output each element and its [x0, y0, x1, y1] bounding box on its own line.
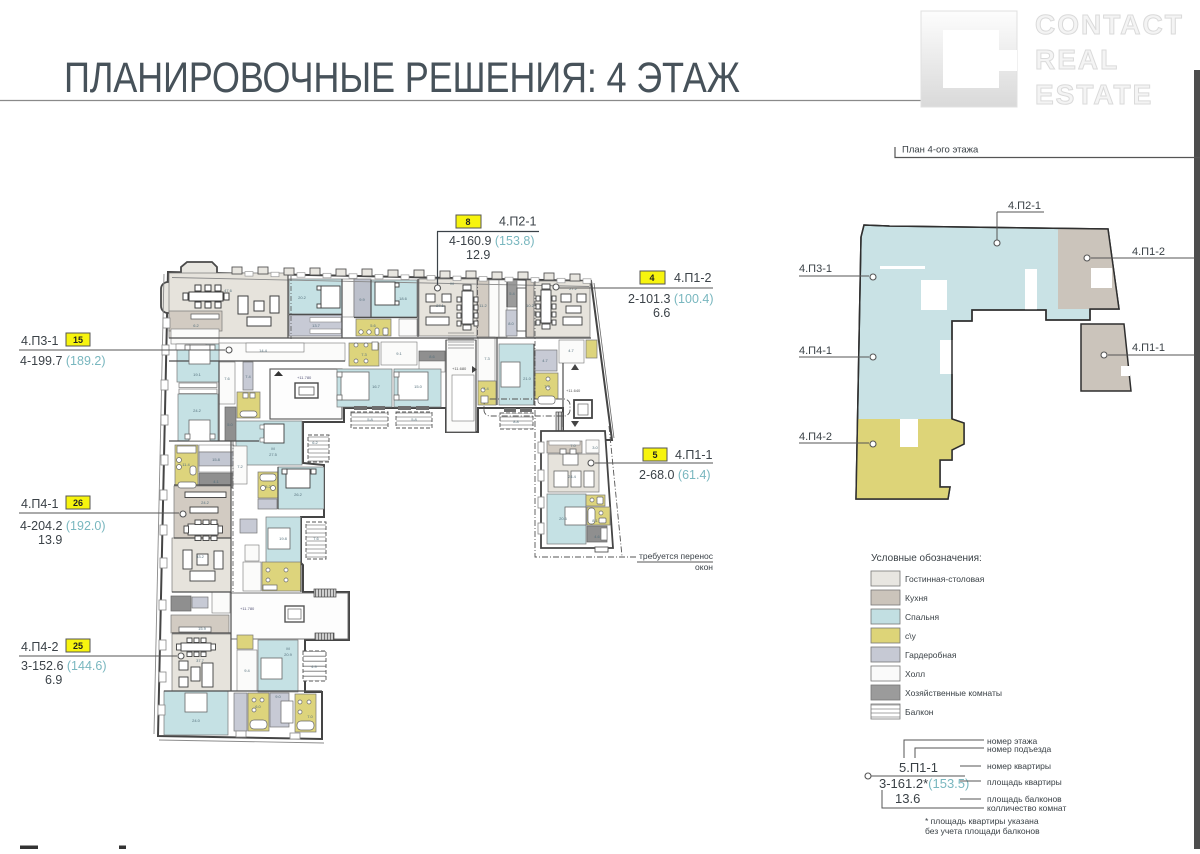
svg-text:15.8: 15.8 — [212, 457, 221, 462]
svg-text:+11.640: +11.640 — [566, 388, 581, 393]
svg-text:без учета площади балконов: без учета площади балконов — [925, 826, 1040, 836]
svg-text:М: М — [271, 446, 274, 451]
svg-text:7.3: 7.3 — [484, 356, 490, 361]
svg-text:+11.780: +11.780 — [240, 606, 255, 611]
svg-text:25: 25 — [73, 641, 83, 651]
svg-text:7.0: 7.0 — [570, 443, 576, 448]
svg-text:Балкон: Балкон — [905, 707, 934, 717]
svg-text:площадь квартиры: площадь квартиры — [987, 777, 1062, 787]
svg-text:3.0: 3.0 — [592, 445, 598, 450]
svg-text:ПЛАНИРОВОЧНЫЕ РЕШЕНИЯ: 4 ЭТАЖ: ПЛАНИРОВОЧНЫЕ РЕШЕНИЯ: 4 ЭТАЖ — [64, 54, 740, 101]
svg-text:колличество комнат: колличество комнат — [987, 803, 1066, 813]
svg-text:9.4: 9.4 — [244, 668, 250, 673]
svg-text:7.4: 7.4 — [245, 374, 251, 379]
svg-text:4.9: 4.9 — [311, 664, 317, 669]
svg-text:33.2: 33.2 — [196, 554, 205, 559]
svg-text:4.6: 4.6 — [594, 534, 600, 539]
svg-text:8.6: 8.6 — [429, 354, 435, 359]
svg-text:18.6: 18.6 — [399, 296, 408, 301]
svg-text:8.8: 8.8 — [513, 419, 519, 424]
svg-text:+11.780: +11.780 — [297, 375, 312, 380]
svg-text:15: 15 — [73, 335, 83, 345]
svg-text:13.6: 13.6 — [895, 791, 920, 806]
svg-text:26: 26 — [73, 498, 83, 508]
svg-text:4.П3-1: 4.П3-1 — [799, 263, 832, 275]
svg-text:11.4: 11.4 — [182, 462, 190, 467]
svg-text:М: М — [286, 646, 289, 651]
svg-text:4-160.9 (153.8): 4-160.9 (153.8) — [449, 234, 534, 248]
svg-text:16.7: 16.7 — [372, 384, 381, 389]
svg-text:4.П4-1: 4.П4-1 — [799, 345, 832, 357]
svg-text:8: 8 — [465, 217, 470, 227]
svg-text:8.0: 8.0 — [508, 321, 514, 326]
svg-text:Гостинная-столовая: Гостинная-столовая — [905, 574, 985, 584]
svg-text:План 4-ого этажа: План 4-ого этажа — [902, 145, 979, 156]
svg-text:6.2: 6.2 — [312, 440, 318, 445]
svg-text:4-199.7 (189.2): 4-199.7 (189.2) — [20, 354, 105, 368]
svg-text:13.7: 13.7 — [312, 323, 321, 328]
svg-text:4.П1-1: 4.П1-1 — [675, 448, 713, 462]
svg-text:4.П1-1: 4.П1-1 — [1132, 342, 1165, 354]
svg-text:20.6: 20.6 — [559, 516, 568, 521]
svg-text:9.9: 9.9 — [359, 297, 365, 302]
svg-text:окон: окон — [695, 562, 713, 572]
svg-text:+11.680: +11.680 — [452, 366, 467, 371]
svg-text:24.2: 24.2 — [201, 500, 210, 505]
svg-text:5.8: 5.8 — [367, 417, 373, 422]
svg-text:24.0: 24.0 — [192, 718, 201, 723]
svg-text:требуется перенос: требуется перенос — [639, 551, 714, 561]
svg-text:ESTATE: ESTATE — [1035, 79, 1153, 110]
svg-text:6.2: 6.2 — [193, 323, 199, 328]
svg-text:Хозяйственные комнаты: Хозяйственные комнаты — [905, 688, 1002, 698]
svg-text:7.7: 7.7 — [544, 384, 550, 389]
svg-text:REAL: REAL — [1035, 44, 1119, 75]
svg-text:Спальня: Спальня — [905, 612, 940, 622]
svg-text:4.П4-1: 4.П4-1 — [21, 497, 59, 511]
svg-text:Кухня: Кухня — [905, 593, 928, 603]
svg-text:5.6: 5.6 — [370, 323, 376, 328]
svg-text:7.6: 7.6 — [313, 536, 319, 541]
svg-text:6.6: 6.6 — [653, 306, 670, 320]
svg-text:2-101.3 (100.4): 2-101.3 (100.4) — [628, 292, 713, 306]
svg-text:4.П2-1: 4.П2-1 — [1008, 200, 1041, 212]
svg-text:3-161.2*(153.5): 3-161.2*(153.5) — [879, 776, 969, 791]
svg-text:5: 5 — [652, 450, 657, 460]
svg-text:4.П3-1: 4.П3-1 — [21, 334, 59, 348]
svg-text:11.2: 11.2 — [479, 303, 487, 308]
svg-text:4.П1-2: 4.П1-2 — [674, 271, 712, 285]
svg-text:5.П1-1: 5.П1-1 — [899, 760, 938, 775]
svg-text:4.П1-2: 4.П1-2 — [1132, 246, 1165, 258]
svg-text:7.6: 7.6 — [224, 376, 230, 381]
svg-text:7.0: 7.0 — [307, 714, 313, 719]
svg-text:номер квартиры: номер квартиры — [987, 761, 1051, 771]
svg-text:5.0: 5.0 — [227, 422, 233, 427]
svg-text:4.7: 4.7 — [542, 358, 548, 363]
svg-text:26.2: 26.2 — [294, 492, 303, 497]
svg-text:12.9: 12.9 — [466, 248, 490, 262]
svg-text:8.1: 8.1 — [592, 518, 598, 523]
svg-text:4: 4 — [649, 273, 654, 283]
svg-text:4.4: 4.4 — [483, 386, 489, 391]
svg-text:5.4: 5.4 — [509, 291, 515, 296]
svg-text:Условные обозначения:: Условные обозначения: — [871, 552, 982, 564]
svg-text:27.1: 27.1 — [436, 303, 445, 308]
svg-text:с\у: с\у — [905, 631, 917, 641]
svg-text:20.2: 20.2 — [298, 295, 307, 300]
svg-text:7.2: 7.2 — [237, 464, 243, 469]
svg-text:9.0: 9.0 — [275, 694, 281, 699]
svg-text:Гардеробная: Гардеробная — [905, 650, 957, 660]
svg-text:4.1: 4.1 — [213, 479, 219, 484]
svg-text:10.2: 10.2 — [526, 303, 535, 308]
svg-text:4.7: 4.7 — [568, 348, 574, 353]
svg-text:5.8: 5.8 — [411, 417, 417, 422]
svg-text:Холл: Холл — [905, 669, 925, 679]
svg-text:19.1: 19.1 — [193, 372, 202, 377]
svg-text:27.5: 27.5 — [269, 452, 278, 457]
svg-text:24.4: 24.4 — [568, 474, 577, 479]
svg-text:CONTACT: CONTACT — [1035, 9, 1184, 40]
svg-text:5.2: 5.2 — [265, 484, 271, 489]
svg-text:4.П4-2: 4.П4-2 — [799, 431, 832, 443]
svg-text:2-68.0 (61.4): 2-68.0 (61.4) — [639, 468, 711, 482]
svg-text:20.9: 20.9 — [284, 652, 293, 657]
svg-text:14.4: 14.4 — [259, 348, 268, 353]
svg-text:9.1: 9.1 — [396, 351, 402, 356]
svg-text:7.3: 7.3 — [361, 352, 367, 357]
svg-text:номер подъезда: номер подъезда — [987, 744, 1052, 754]
svg-text:* площадь квартиры указана: * площадь квартиры указана — [925, 816, 1039, 826]
svg-text:4.П4-2: 4.П4-2 — [21, 640, 59, 654]
svg-text:4.П2-1: 4.П2-1 — [499, 215, 537, 229]
svg-text:15.0: 15.0 — [414, 384, 423, 389]
svg-text:15.9: 15.9 — [198, 626, 207, 631]
svg-text:М: М — [450, 281, 453, 286]
svg-text:4-204.2 (192.0): 4-204.2 (192.0) — [20, 519, 105, 533]
svg-text:13.9: 13.9 — [38, 533, 62, 547]
svg-text:3-152.6 (144.6): 3-152.6 (144.6) — [21, 659, 106, 673]
svg-text:6.0: 6.0 — [255, 704, 261, 709]
svg-text:21.0: 21.0 — [523, 376, 532, 381]
svg-text:37.7: 37.7 — [196, 658, 205, 663]
svg-text:19.8: 19.8 — [279, 536, 288, 541]
svg-text:24.2: 24.2 — [193, 408, 202, 413]
svg-text:6.9: 6.9 — [45, 673, 62, 687]
svg-text:47.6: 47.6 — [224, 288, 233, 293]
